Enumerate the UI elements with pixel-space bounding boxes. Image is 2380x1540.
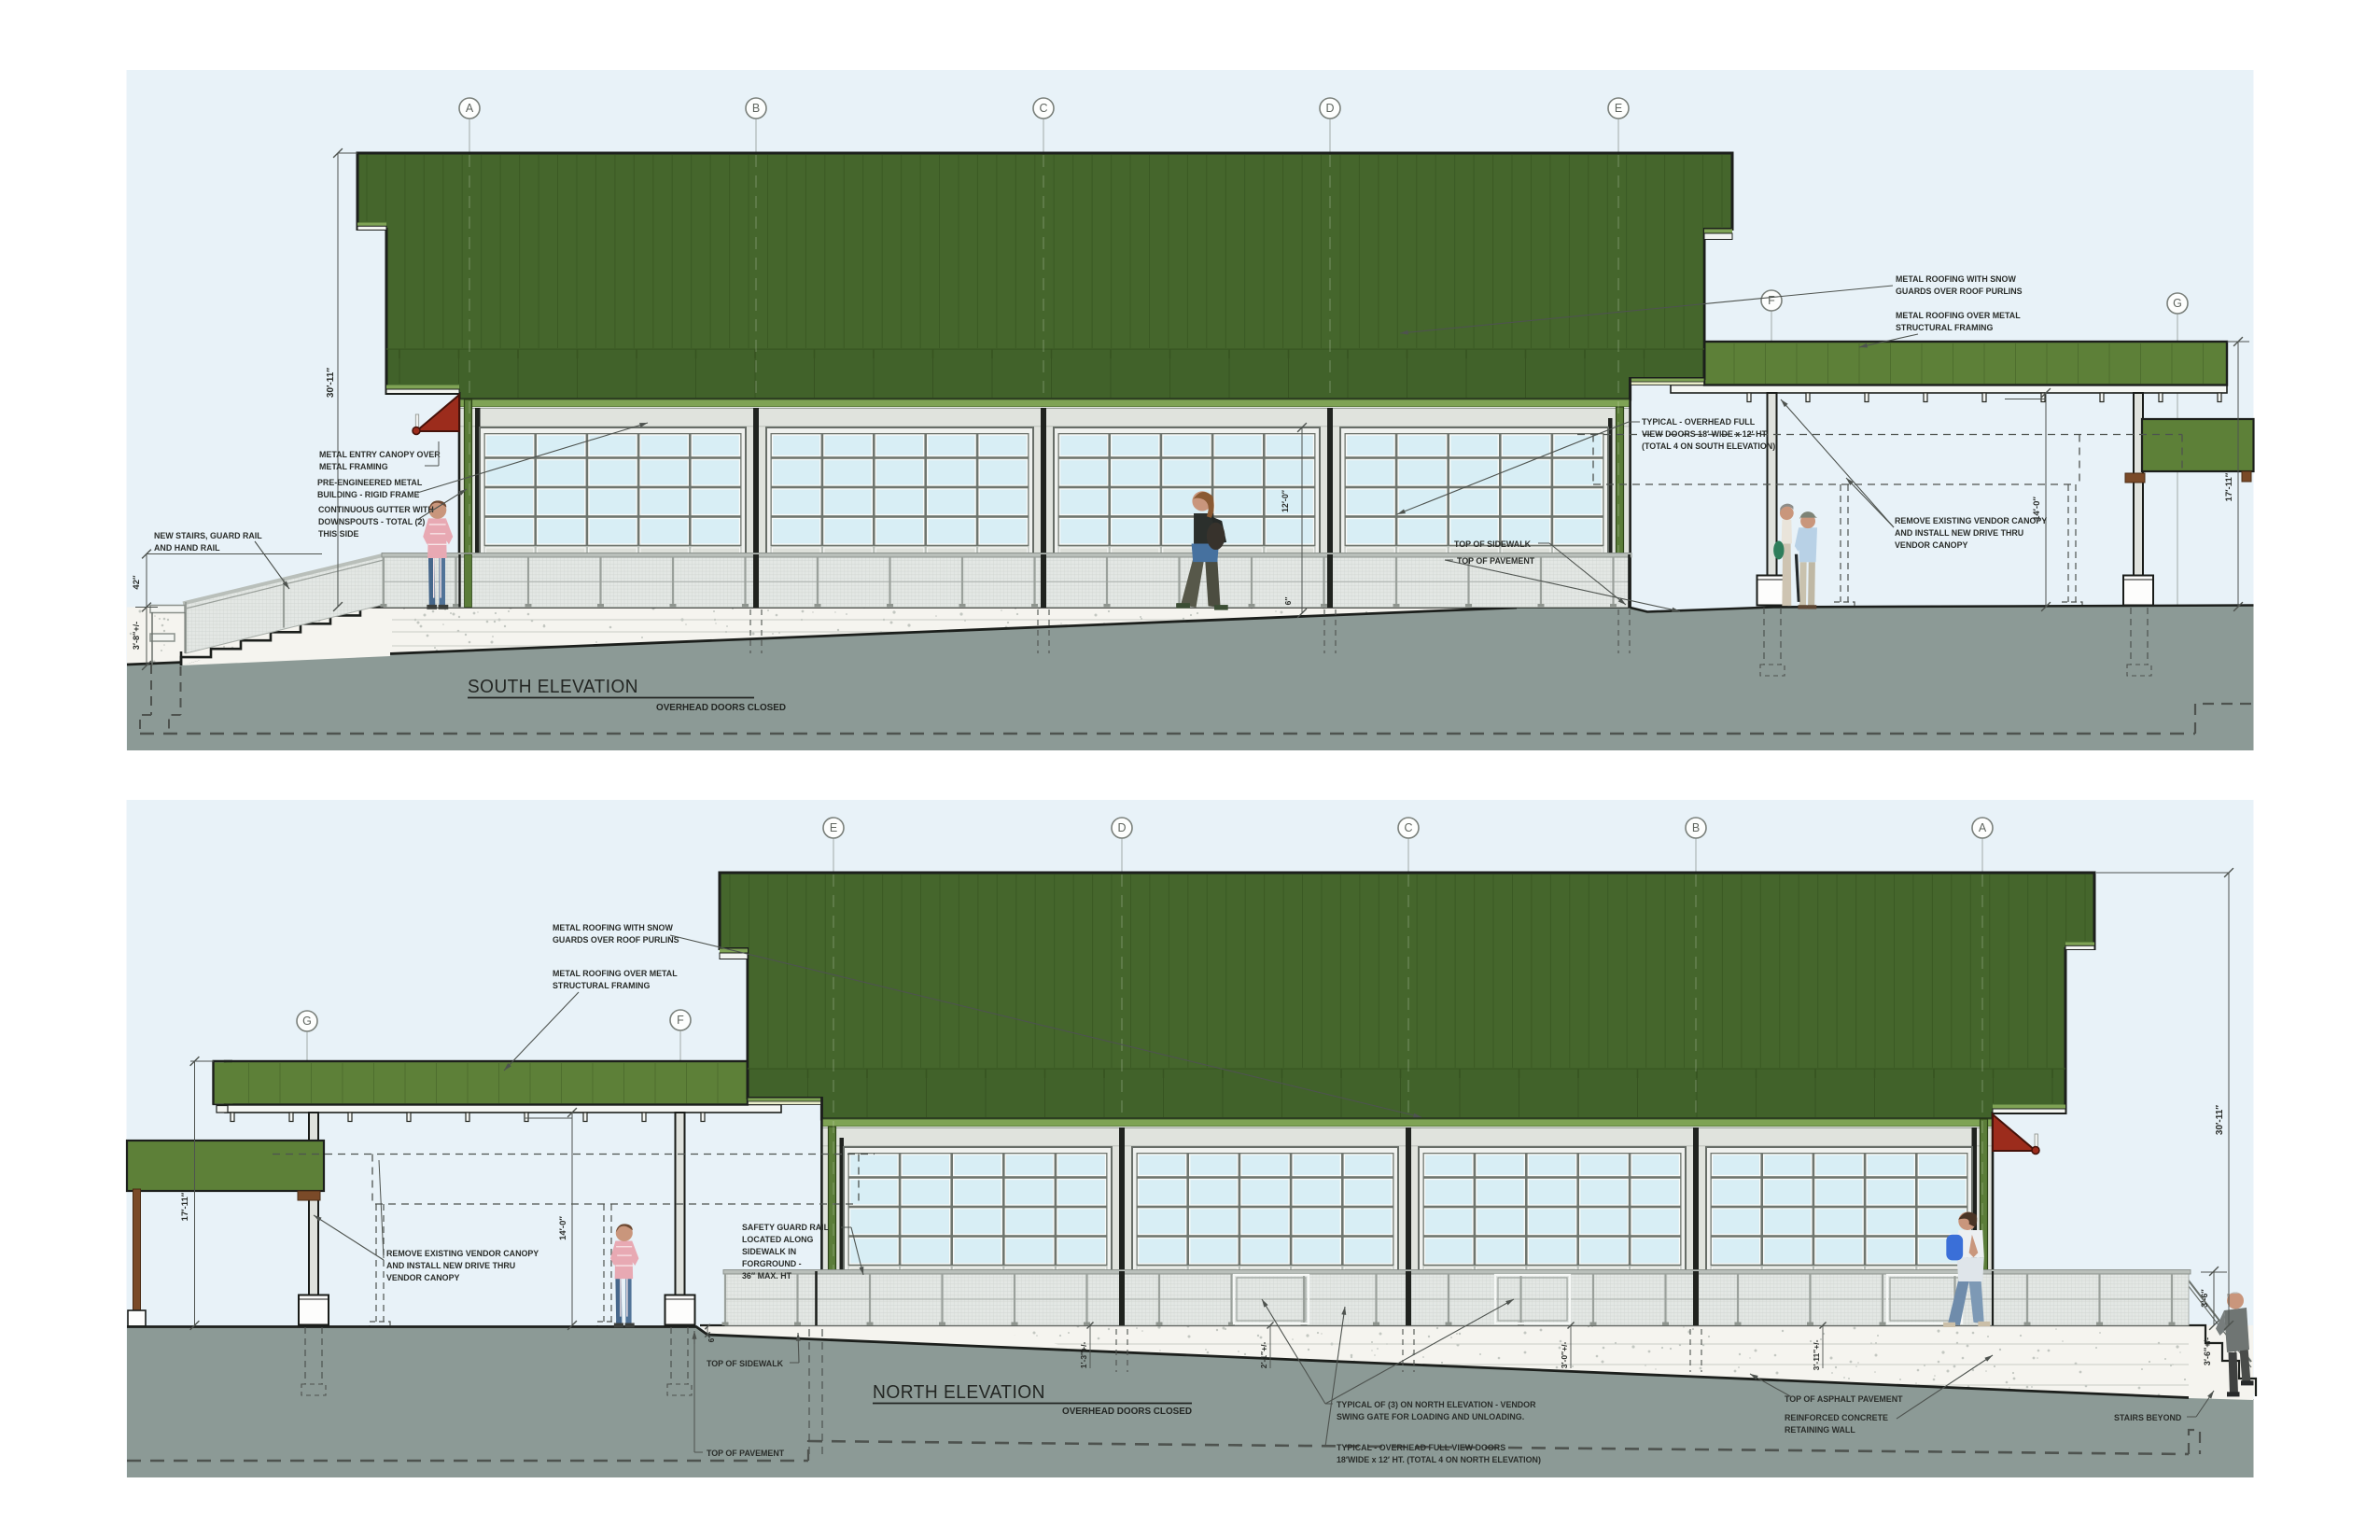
svg-text:BUILDING - RIGID FRAME: BUILDING - RIGID FRAME bbox=[317, 490, 420, 499]
svg-text:C: C bbox=[1039, 102, 1047, 115]
svg-text:14′-0″: 14′-0″ bbox=[558, 1216, 568, 1240]
svg-text:6″: 6″ bbox=[1283, 597, 1293, 606]
svg-text:17′-11″: 17′-11″ bbox=[2224, 472, 2234, 501]
svg-text:6″: 6″ bbox=[707, 1335, 716, 1343]
svg-text:B: B bbox=[752, 102, 760, 115]
svg-text:D: D bbox=[1325, 102, 1334, 115]
svg-text:NEW STAIRS, GUARD RAIL: NEW STAIRS, GUARD RAIL bbox=[154, 531, 262, 540]
svg-text:CONTINUOUS GUTTER WITH: CONTINUOUS GUTTER WITH bbox=[318, 505, 434, 514]
svg-text:30′-11″: 30′-11″ bbox=[326, 368, 336, 398]
svg-text:F: F bbox=[677, 1014, 684, 1027]
svg-text:AND HAND RAIL: AND HAND RAIL bbox=[154, 543, 220, 553]
svg-text:METAL ROOFING OVER METAL: METAL ROOFING OVER METAL bbox=[553, 969, 678, 978]
svg-text:C: C bbox=[1404, 821, 1412, 834]
svg-text:TOP OF SIDEWALK: TOP OF SIDEWALK bbox=[1454, 539, 1532, 549]
svg-text:AND INSTALL NEW DRIVE THRU: AND INSTALL NEW DRIVE THRU bbox=[1895, 528, 2023, 538]
svg-text:F: F bbox=[1768, 294, 1775, 307]
svg-text:3′-0″+/-: 3′-0″+/- bbox=[1560, 1342, 1569, 1369]
svg-text:SAFETY GUARD RAIL: SAFETY GUARD RAIL bbox=[742, 1223, 830, 1232]
svg-text:12′-0″: 12′-0″ bbox=[1281, 489, 1290, 512]
svg-text:3′-11″+/-: 3′-11″+/- bbox=[1812, 1339, 1821, 1370]
svg-text:STAIRS BEYOND: STAIRS BEYOND bbox=[2114, 1413, 2182, 1422]
svg-text:GUARDS OVER ROOF PURLINS: GUARDS OVER ROOF PURLINS bbox=[553, 935, 679, 945]
svg-text:VENDOR CANOPY: VENDOR CANOPY bbox=[386, 1273, 459, 1282]
svg-text:G: G bbox=[2173, 297, 2182, 310]
svg-text:METAL ROOFING WITH SNOW: METAL ROOFING WITH SNOW bbox=[553, 923, 673, 932]
svg-text:D: D bbox=[1117, 821, 1126, 834]
svg-text:STRUCTURAL FRAMING: STRUCTURAL FRAMING bbox=[553, 981, 650, 990]
svg-text:RETAINING WALL: RETAINING WALL bbox=[1785, 1425, 1855, 1435]
svg-text:42″: 42″ bbox=[132, 575, 142, 590]
svg-text:METAL FRAMING: METAL FRAMING bbox=[319, 462, 388, 471]
svg-text:GUARDS OVER ROOF PURLINS: GUARDS OVER ROOF PURLINS bbox=[1896, 287, 2023, 296]
svg-text:STRUCTURAL FRAMING: STRUCTURAL FRAMING bbox=[1896, 323, 1993, 332]
svg-text:REMOVE EXISTING VENDOR CANOPY: REMOVE EXISTING VENDOR CANOPY bbox=[1895, 516, 2047, 525]
svg-text:TYPICAL - OVERHEAD FULL: TYPICAL - OVERHEAD FULL bbox=[1642, 417, 1756, 427]
svg-text:TOP OF PAVEMENT: TOP OF PAVEMENT bbox=[707, 1449, 785, 1458]
svg-text:PRE-ENGINEERED METAL: PRE-ENGINEERED METAL bbox=[317, 478, 423, 487]
svg-text:DOWNSPOUTS - TOTAL (2): DOWNSPOUTS - TOTAL (2) bbox=[318, 517, 425, 526]
svg-text:3′-8″+/-: 3′-8″+/- bbox=[132, 622, 141, 650]
svg-text:LOCATED ALONG: LOCATED ALONG bbox=[742, 1235, 814, 1244]
svg-text:3′-6″: 3′-6″ bbox=[2200, 1289, 2209, 1308]
svg-text:OVERHEAD DOORS CLOSED: OVERHEAD DOORS CLOSED bbox=[656, 703, 786, 713]
svg-text:E: E bbox=[1615, 102, 1622, 115]
svg-text:FORGROUND -: FORGROUND - bbox=[742, 1259, 802, 1268]
svg-text:TOP OF ASPHALT PAVEMENT: TOP OF ASPHALT PAVEMENT bbox=[1785, 1394, 1903, 1404]
svg-text:REINFORCED CONCRETE: REINFORCED CONCRETE bbox=[1785, 1413, 1888, 1422]
svg-text:SIDEWALK IN: SIDEWALK IN bbox=[742, 1247, 796, 1256]
svg-text:TOP OF SIDEWALK: TOP OF SIDEWALK bbox=[707, 1359, 784, 1368]
svg-text:2′-1″+/-: 2′-1″+/- bbox=[1259, 1342, 1268, 1369]
svg-text:METAL ROOFING OVER METAL: METAL ROOFING OVER METAL bbox=[1896, 311, 2021, 320]
svg-text:17′-11″: 17′-11″ bbox=[180, 1192, 190, 1221]
svg-text:VIEW DOORS 18′ WIDE x 12′ HT.: VIEW DOORS 18′ WIDE x 12′ HT. bbox=[1642, 429, 1768, 439]
svg-text:TOP OF PAVEMENT: TOP OF PAVEMENT bbox=[1457, 556, 1535, 566]
svg-text:3′-6″+/-: 3′-6″+/- bbox=[2203, 1337, 2212, 1365]
svg-text:METAL ROOFING WITH SNOW: METAL ROOFING WITH SNOW bbox=[1896, 274, 2016, 284]
svg-text:(TOTAL 4 ON SOUTH ELEVATION): (TOTAL 4 ON SOUTH ELEVATION) bbox=[1642, 441, 1775, 451]
svg-text:30′-11″: 30′-11″ bbox=[2215, 1105, 2225, 1135]
svg-text:18′WIDE x 12′ HT. (TOTAL 4 ON: 18′WIDE x 12′ HT. (TOTAL 4 ON NORTH ELEV… bbox=[1337, 1455, 1541, 1464]
svg-text:REMOVE EXISTING VENDOR CANOPY: REMOVE EXISTING VENDOR CANOPY bbox=[386, 1249, 539, 1258]
svg-text:METAL ENTRY CANOPY OVER: METAL ENTRY CANOPY OVER bbox=[319, 450, 441, 459]
svg-text:VENDOR CANOPY: VENDOR CANOPY bbox=[1895, 540, 1967, 550]
svg-text:SWING GATE FOR LOADING AND UNL: SWING GATE FOR LOADING AND UNLOADING. bbox=[1337, 1412, 1524, 1421]
svg-text:1′-3″+/-: 1′-3″+/- bbox=[1079, 1342, 1088, 1369]
svg-text:SOUTH ELEVATION: SOUTH ELEVATION bbox=[468, 676, 638, 697]
svg-text:G: G bbox=[302, 1015, 312, 1028]
svg-text:AND INSTALL NEW DRIVE THRU: AND INSTALL NEW DRIVE THRU bbox=[386, 1261, 515, 1270]
svg-text:36″ MAX. HT: 36″ MAX. HT bbox=[742, 1271, 792, 1281]
svg-text:E: E bbox=[830, 821, 837, 834]
svg-text:TYPICAL OF (3) ON NORTH ELEVAT: TYPICAL OF (3) ON NORTH ELEVATION - VEND… bbox=[1337, 1400, 1536, 1409]
svg-text:THIS SIDE: THIS SIDE bbox=[318, 529, 358, 539]
svg-text:OVERHEAD DOORS CLOSED: OVERHEAD DOORS CLOSED bbox=[1062, 1407, 1192, 1417]
svg-text:NORTH ELEVATION: NORTH ELEVATION bbox=[873, 1381, 1045, 1403]
svg-text:TYPICAL - OVERHEAD FULL VIEW D: TYPICAL - OVERHEAD FULL VIEW DOORS bbox=[1337, 1443, 1505, 1452]
svg-text:B: B bbox=[1692, 821, 1700, 834]
svg-text:A: A bbox=[1979, 821, 1987, 834]
svg-text:A: A bbox=[466, 102, 474, 115]
